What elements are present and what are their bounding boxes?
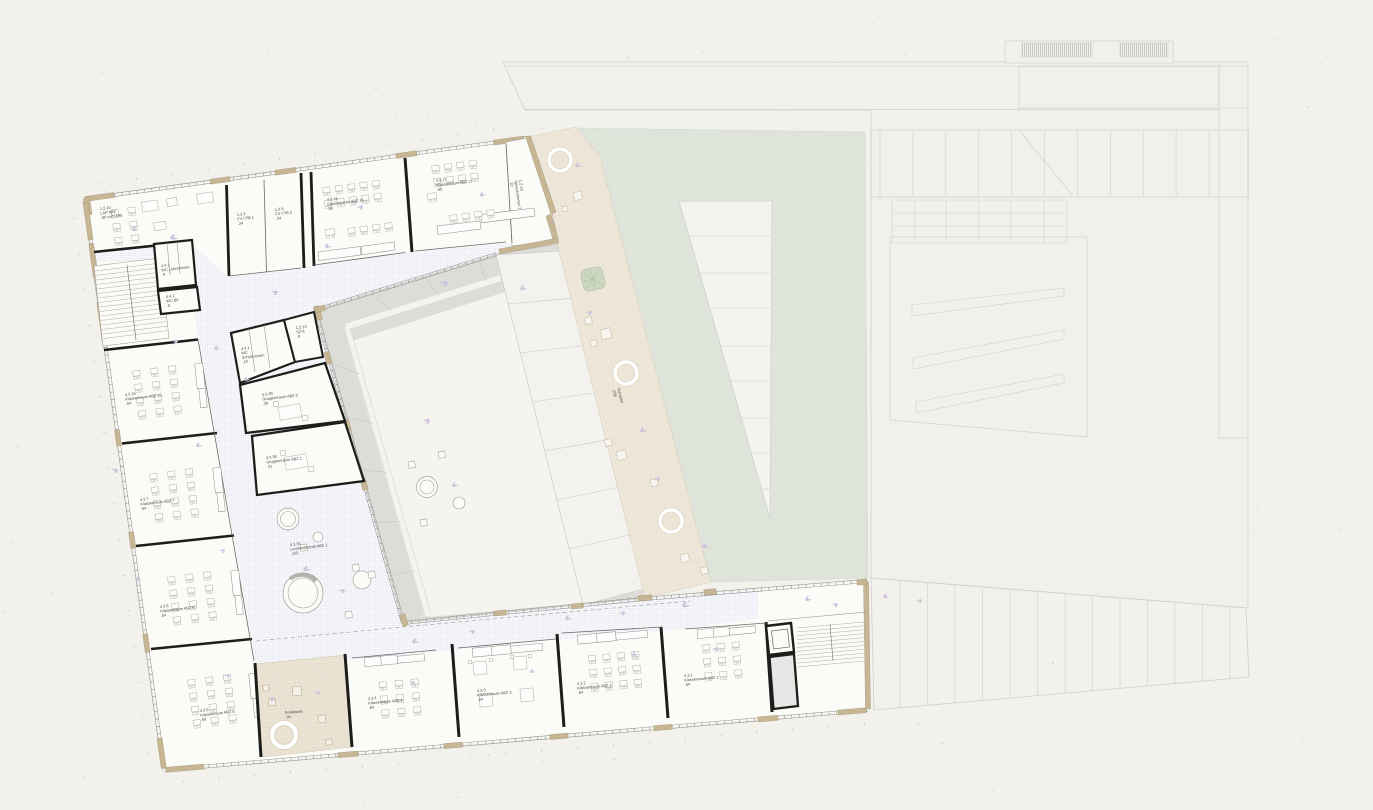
svg-text:.39: .39	[285, 714, 291, 719]
svg-text:.65: .65	[328, 205, 334, 211]
svg-text:.120: .120	[291, 550, 300, 556]
svg-text:.9: .9	[162, 272, 166, 277]
svg-text:.38: .38	[263, 400, 269, 406]
svg-text:.68: .68	[437, 186, 443, 192]
svg-text:.9: .9	[297, 334, 301, 339]
svg-text:.41: .41	[267, 463, 273, 469]
svg-text:.69: .69	[201, 716, 207, 722]
svg-text:.5: .5	[167, 303, 171, 308]
svg-text:.19: .19	[242, 359, 248, 365]
